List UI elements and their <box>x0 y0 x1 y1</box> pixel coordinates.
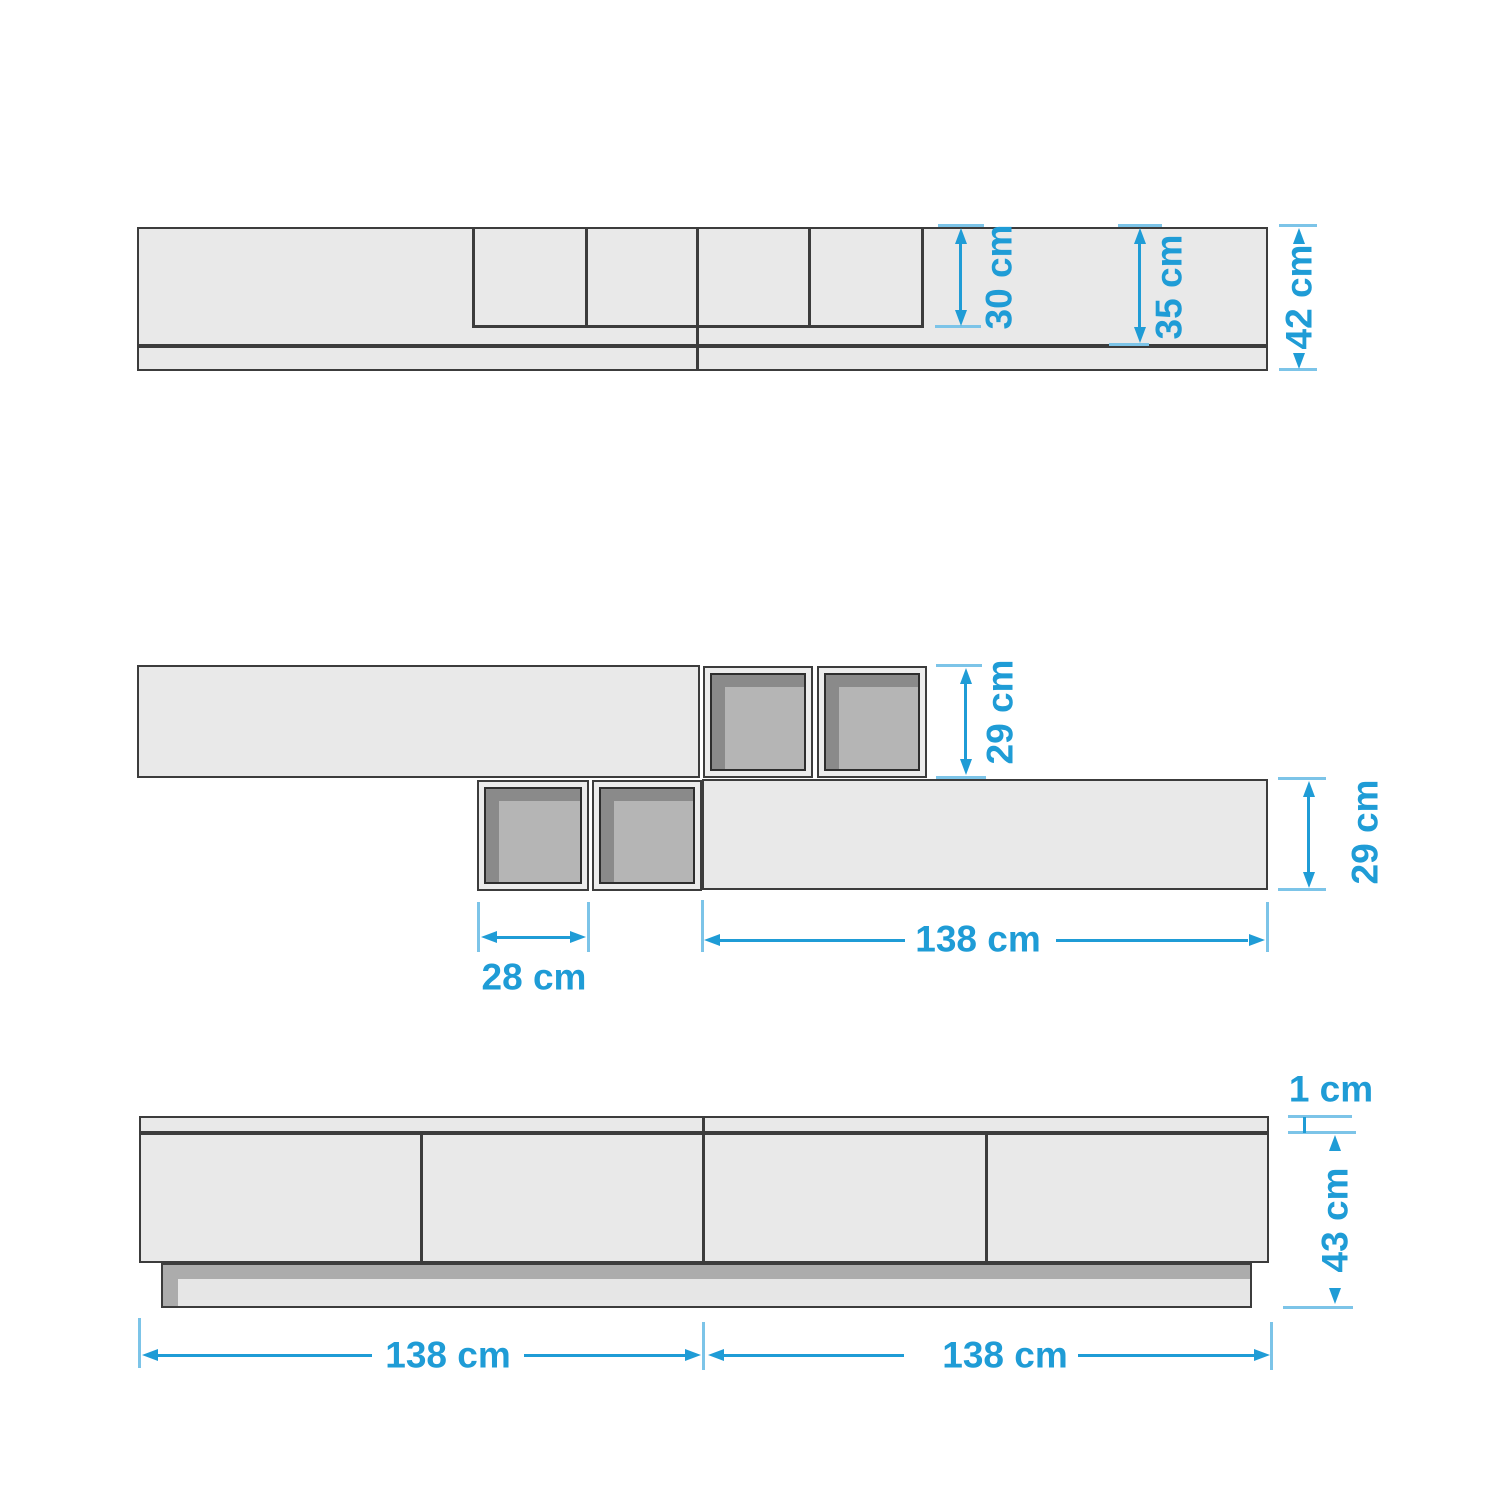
lower-wall-board-panel <box>702 779 1268 890</box>
dim-138cm-bottom-right-arrow-left-icon <box>708 1349 724 1361</box>
upper-cube-left <box>703 666 813 778</box>
dim-30cm-arrow-line <box>959 243 962 312</box>
dim-29cm-right-tick-bottom <box>1278 888 1326 891</box>
upper-cube-left-opening <box>710 673 806 771</box>
lower-cube-left-back-panel <box>499 801 580 882</box>
dim-30cm-arrow-up-icon <box>955 228 967 244</box>
dim-30cm-arrow-down-icon <box>955 310 967 326</box>
dim-29cm-right-tick-top <box>1278 777 1326 780</box>
dim-138cm-bottom-left-line-right <box>524 1354 686 1357</box>
dim-35cm-label: 35 cm <box>1151 235 1188 340</box>
lower-cube-left <box>477 780 589 891</box>
upper-cube-right-opening <box>824 673 920 771</box>
dim-42cm-arrow-up-icon <box>1293 228 1305 244</box>
lowboard-plinth-face <box>178 1279 1250 1306</box>
dim-35cm-arrow-up-icon <box>1134 228 1146 244</box>
dim-29cm-upper-tick-bottom <box>936 776 986 779</box>
dim-29cm-upper-label: 29 cm <box>982 660 1019 765</box>
shelf-compartment-divider-line <box>921 227 924 327</box>
shelf-carcass-panel <box>137 227 1268 346</box>
dim-42cm-tick-top <box>1279 224 1317 227</box>
lowboard-drawer-divider-line <box>985 1133 988 1263</box>
dim-138cm-bottom-left-label: 138 cm <box>385 1337 511 1374</box>
dim-138cm-middle-arrow-right-icon <box>1249 934 1265 946</box>
lowboard-top-panel-joint-line <box>702 1116 705 1133</box>
dim-43cm-tick-bottom <box>1283 1306 1353 1309</box>
dim-138cm-bottom-left-line-left <box>158 1354 372 1357</box>
dim-35cm-arrow-down-icon <box>1134 327 1146 343</box>
dim-138cm-bottom-right-line-right <box>1078 1354 1254 1357</box>
dim-35cm-arrow-line <box>1138 243 1141 329</box>
dim-29cm-upper-arrow-up-icon <box>960 668 972 684</box>
dim-1cm-tick-top <box>1288 1115 1352 1118</box>
shelf-bottom-board <box>137 346 1268 371</box>
dim-42cm-label: 42 cm <box>1281 245 1318 350</box>
shelf-compartment-divider-line <box>808 227 811 327</box>
dim-138cm-bottom-left-arrow-left-icon <box>142 1349 158 1361</box>
dim-138cm-middle-extension-right <box>1266 902 1269 952</box>
dim-35cm-tick-bottom <box>1109 343 1149 346</box>
dim-43cm-arrow-up-icon <box>1329 1135 1341 1151</box>
dim-42cm-arrow-down-icon <box>1293 353 1305 369</box>
dim-28cm-label: 28 cm <box>482 959 587 996</box>
dim-138cm-bottom-left-arrow-right-icon <box>685 1349 701 1361</box>
dim-28cm-extension-left <box>477 902 480 952</box>
shelf-compartment-divider-line <box>585 227 588 327</box>
furniture-dimension-diagram: 30 cm 35 cm 42 cm <box>0 0 1500 1500</box>
upper-cube-right-back-panel <box>839 687 918 769</box>
dim-1cm-connector-line <box>1303 1117 1306 1133</box>
lower-cube-right-opening <box>599 787 695 884</box>
lower-cube-left-opening <box>484 787 582 884</box>
dim-138cm-bottom-center-extension <box>702 1322 705 1370</box>
upper-cube-right <box>817 666 927 778</box>
dim-43cm-arrow-down-icon <box>1329 1288 1341 1304</box>
dim-28cm-extension-right <box>587 902 590 952</box>
dim-29cm-right-label: 29 cm <box>1347 780 1384 885</box>
dim-138cm-bottom-right-extension <box>1270 1322 1273 1370</box>
dim-29cm-upper-tick-top <box>936 664 982 667</box>
dim-138cm-middle-line-left <box>720 939 905 942</box>
dim-29cm-right-arrow-down-icon <box>1303 872 1315 888</box>
shelf-compartment-bottom-line <box>472 325 924 328</box>
dim-30cm-tick-top <box>938 224 984 227</box>
dim-30cm-label: 30 cm <box>981 225 1018 330</box>
dim-138cm-bottom-left-extension <box>138 1318 141 1368</box>
upper-wall-board-panel <box>137 665 700 778</box>
dim-1cm-label: 1 cm <box>1289 1071 1373 1108</box>
lower-cube-right-back-panel <box>614 801 693 882</box>
shelf-center-divider-line <box>696 227 699 371</box>
dim-138cm-middle-arrow-left-icon <box>704 934 720 946</box>
dim-29cm-right-arrow-line <box>1307 796 1310 874</box>
dim-138cm-bottom-right-arrow-right-icon <box>1254 1349 1270 1361</box>
upper-cube-left-back-panel <box>725 687 804 769</box>
shelf-compartment-divider-line <box>472 227 475 327</box>
dim-43cm-label: 43 cm <box>1317 1168 1354 1273</box>
dim-35cm-tick-top <box>1118 224 1162 227</box>
dim-29cm-upper-arrow-line <box>964 683 967 761</box>
dim-28cm-arrow-right-icon <box>570 931 586 943</box>
dim-138cm-middle-label: 138 cm <box>915 921 1041 958</box>
dim-29cm-right-arrow-up-icon <box>1303 781 1315 797</box>
dim-138cm-middle-line-right <box>1056 939 1248 942</box>
lower-cube-right <box>592 780 702 891</box>
lowboard-drawer-divider-line <box>420 1133 423 1263</box>
dim-28cm-arrow-line <box>497 936 571 939</box>
dim-1cm-tick-bottom <box>1288 1131 1356 1134</box>
dim-138cm-bottom-right-label: 138 cm <box>942 1337 1068 1374</box>
lowboard-plinth <box>161 1263 1252 1308</box>
dim-28cm-arrow-left-icon <box>481 931 497 943</box>
dim-138cm-bottom-right-line-left <box>724 1354 904 1357</box>
dim-29cm-upper-arrow-down-icon <box>960 759 972 775</box>
lowboard-center-divider-line <box>702 1133 705 1263</box>
